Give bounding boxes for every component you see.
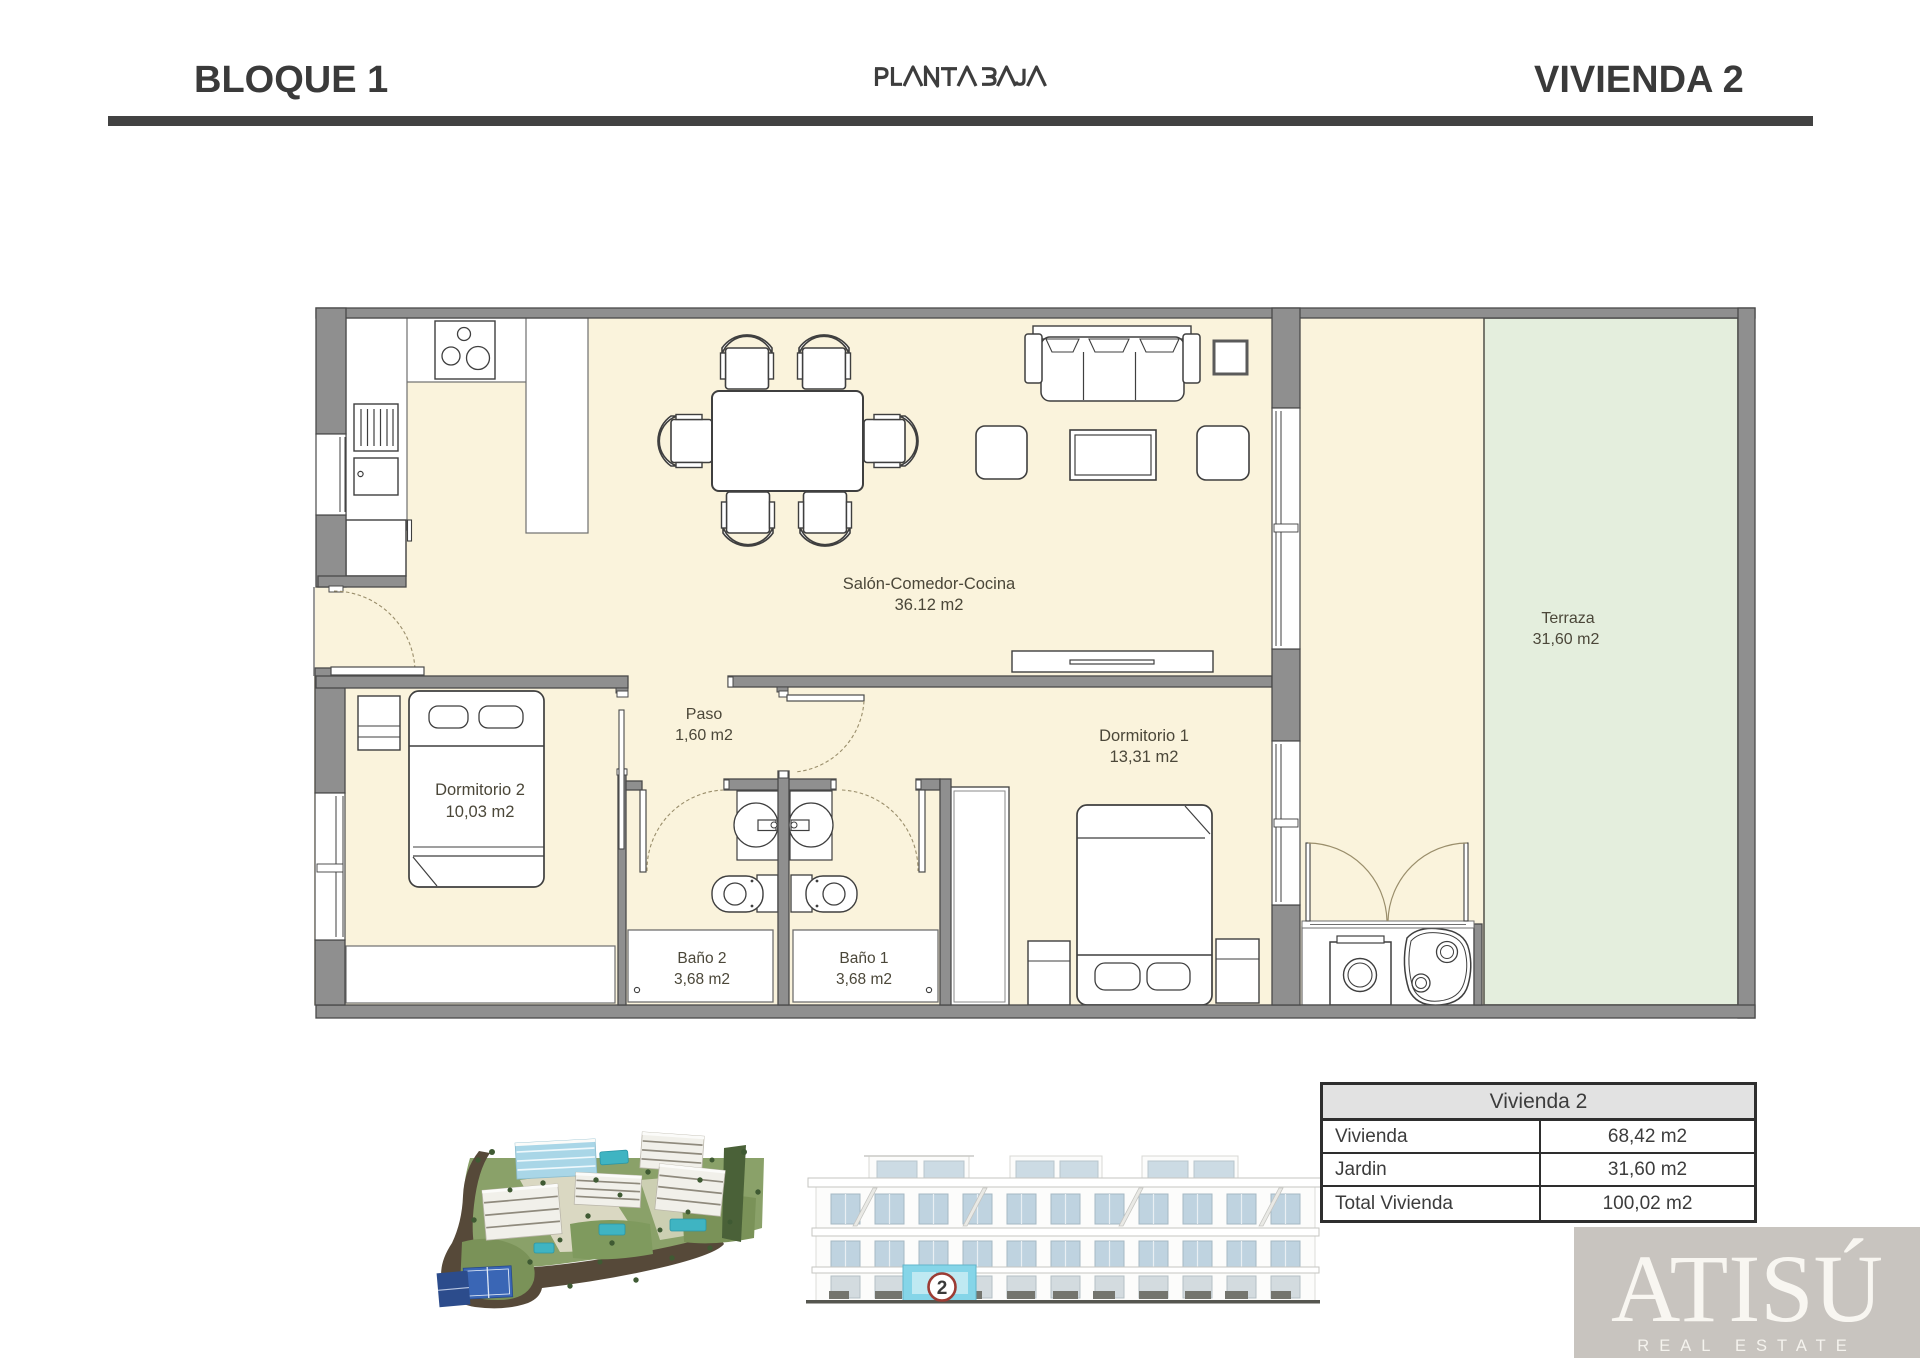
svg-text:2: 2 [937, 1278, 948, 1299]
svg-text:Dormitorio 1: Dormitorio 1 [1099, 727, 1189, 745]
svg-text:1,60 m2: 1,60 m2 [675, 727, 733, 744]
svg-text:Dormitorio 2: Dormitorio 2 [435, 781, 525, 799]
svg-text:Baño 1: Baño 1 [839, 950, 888, 967]
svg-text:36.12 m2: 36.12 m2 [895, 596, 964, 614]
svg-text:31,60 m2: 31,60 m2 [1533, 631, 1600, 648]
svg-text:3,68 m2: 3,68 m2 [836, 971, 892, 988]
svg-text:Baño 2: Baño 2 [677, 950, 726, 967]
svg-text:3,68 m2: 3,68 m2 [674, 971, 730, 988]
svg-text:Terraza: Terraza [1541, 610, 1594, 627]
svg-text:Salón-Comedor-Cocina: Salón-Comedor-Cocina [843, 575, 1016, 593]
svg-text:Paso: Paso [686, 706, 723, 723]
svg-text:13,31 m2: 13,31 m2 [1110, 748, 1179, 766]
svg-text:10,03 m2: 10,03 m2 [446, 803, 515, 821]
